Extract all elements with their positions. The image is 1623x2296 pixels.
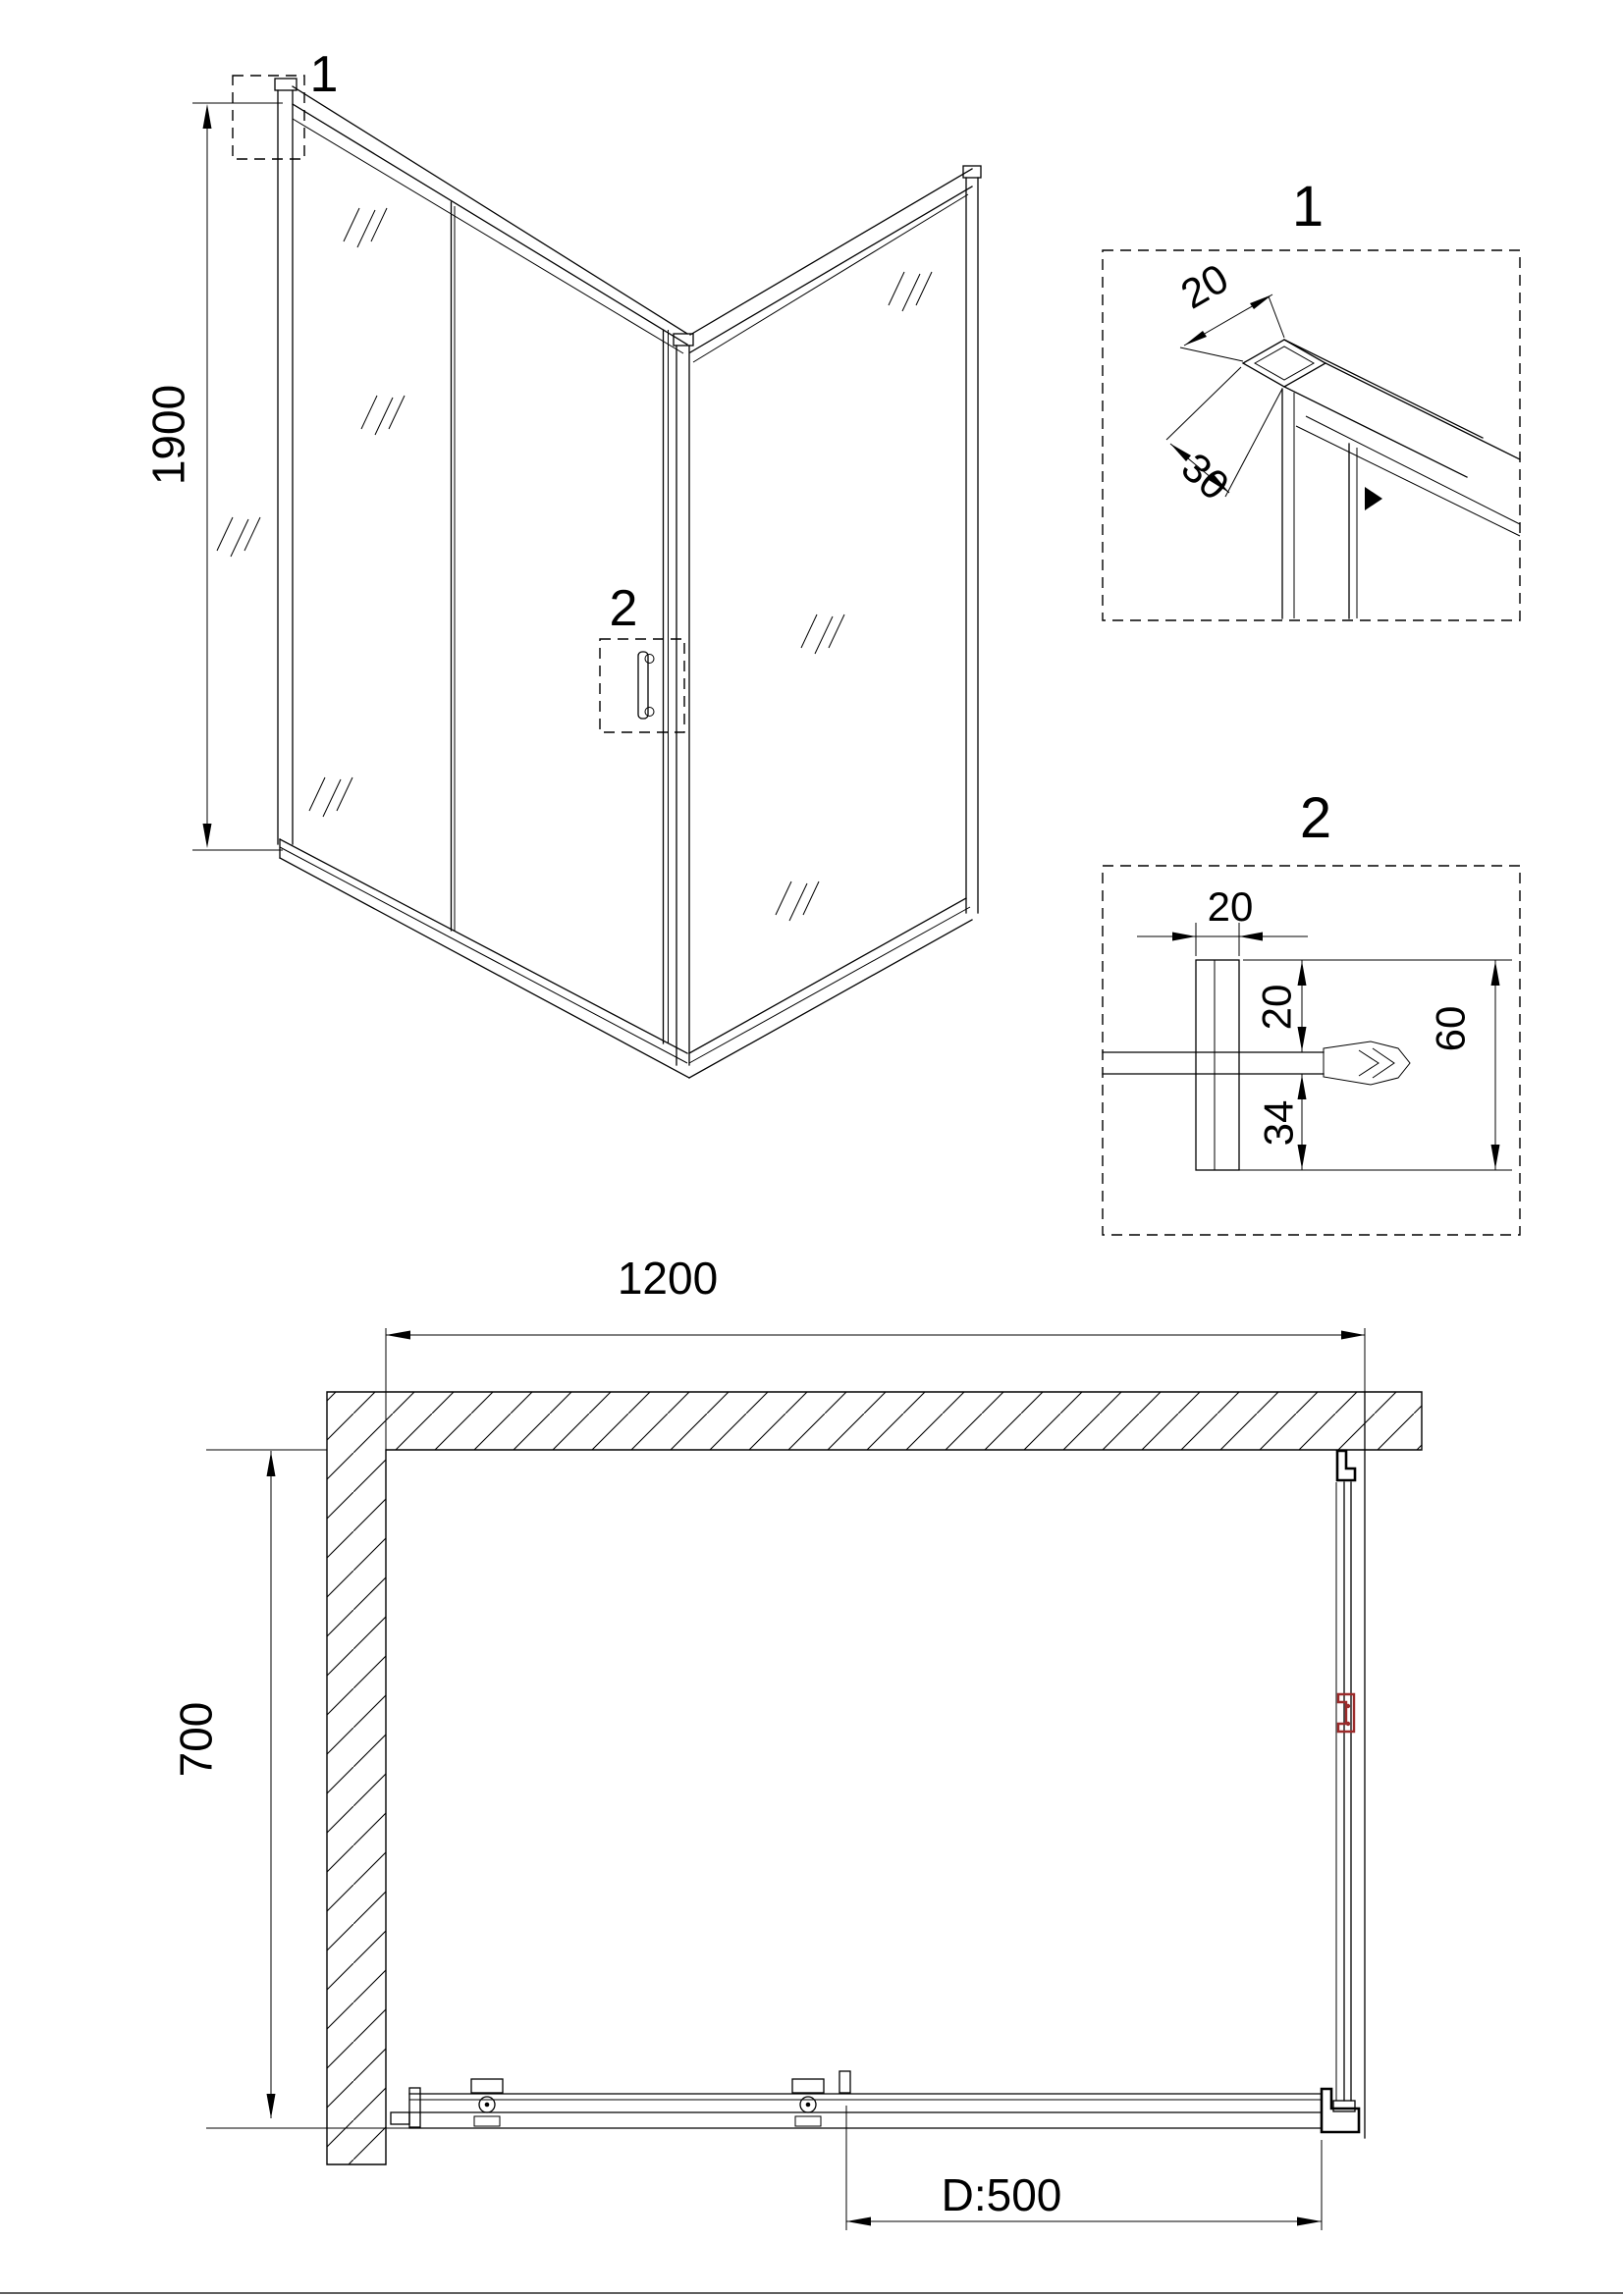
wall-hatched — [327, 1392, 1422, 2164]
callout-2-label: 2 — [610, 580, 638, 637]
detail-2-label: 2 — [1300, 786, 1331, 850]
red-bracket-dot-bottom — [1346, 1722, 1350, 1726]
glass-reflection-marks — [217, 208, 932, 921]
dim-1900: 1900 — [143, 103, 283, 850]
detail-1-view: 1 20 — [1103, 175, 1520, 620]
detail-2-dim-20-side-label: 20 — [1253, 985, 1299, 1031]
detail-2-view: 2 20 20 — [1103, 786, 1520, 1235]
bottom-track — [409, 2094, 1321, 2128]
dim-1200-label: 1200 — [618, 1253, 718, 1304]
detail-2-dim-20-top: 20 — [1137, 883, 1308, 956]
bottom-sill-side — [689, 898, 972, 1078]
detail-1-dim-20-label: 20 — [1173, 254, 1236, 317]
red-bracket-dot-top — [1346, 1704, 1350, 1708]
detail-1-label: 1 — [1292, 175, 1324, 239]
bottom-sill-front — [280, 839, 689, 1078]
door-left-wall-profile — [275, 79, 297, 844]
side-panel-plan — [1336, 1392, 1365, 2138]
detail-2-dim-60-label: 60 — [1427, 1006, 1473, 1052]
detail-1-corner-profile-isometric — [1243, 340, 1520, 618]
corner-bracket-top-right — [1337, 1451, 1355, 1480]
roller-carriage-right — [792, 2079, 824, 2126]
dim-700-label: 700 — [171, 1702, 222, 1778]
front-elevation-view: 1900 — [143, 46, 981, 1078]
detail-2-dim-20-side: 20 — [1253, 960, 1306, 1052]
door-handle — [638, 652, 654, 719]
plan-view: 1200 700 — [171, 1253, 1422, 2230]
door-stop-tab — [839, 2071, 850, 2093]
detail-2-glass-panel — [1103, 1052, 1324, 1074]
shower-enclosure-technical-drawing: 1900 — [0, 0, 1623, 2296]
door-right-stile — [664, 330, 669, 1043]
sliding-door-divider — [452, 202, 456, 931]
detail-2-dim-34-label: 34 — [1255, 1100, 1301, 1147]
cad-drawing-canvas: 1900 — [0, 0, 1623, 2296]
detail-2-wall-profile-section — [1196, 960, 1239, 1170]
corner-post — [674, 334, 693, 1065]
door-top-rail — [293, 86, 687, 353]
callout-1-label: 1 — [310, 46, 339, 103]
detail-2-seal-profile — [1324, 1041, 1410, 1085]
dim-d500: D:500 — [846, 2106, 1322, 2230]
detail-2-dim-20-top-label: 20 — [1208, 883, 1254, 930]
detail-1-dim-20: 20 — [1173, 254, 1284, 361]
dim-1900-label: 1900 — [143, 385, 194, 485]
corner-bracket-bottom-right — [1322, 2089, 1359, 2132]
callout-2: 2 — [600, 580, 684, 732]
side-panel-top-rail — [690, 169, 972, 362]
detail-2-dim-34: 34 — [1255, 1074, 1306, 1170]
side-panel-end-post — [963, 166, 981, 913]
detail-1-dim-30: 30 — [1166, 367, 1282, 508]
dim-d500-label: D:500 — [942, 2169, 1062, 2220]
roller-carriage-left — [471, 2079, 503, 2126]
